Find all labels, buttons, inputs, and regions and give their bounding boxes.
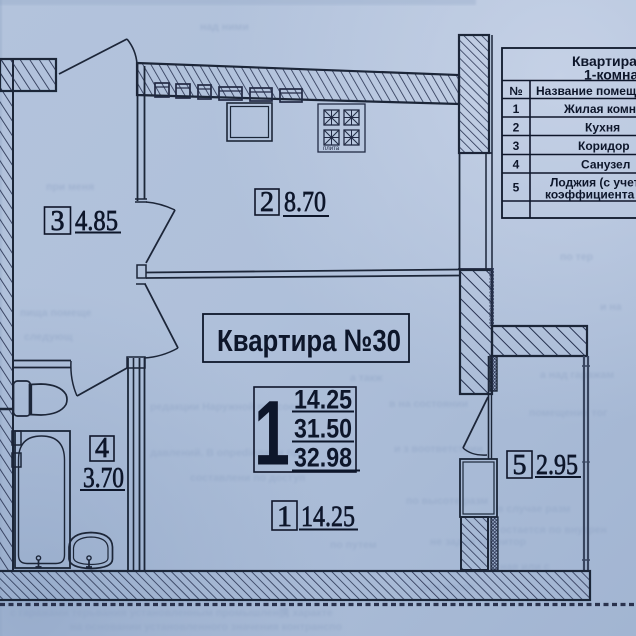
svg-text:3: 3 bbox=[513, 139, 520, 153]
svg-text:Санузел: Санузел bbox=[581, 158, 630, 172]
svg-text:а такж: а такж bbox=[350, 372, 383, 384]
svg-text:при меня: при меня bbox=[46, 181, 94, 193]
svg-text:остается по внутрен: остается по внутрен bbox=[500, 524, 607, 536]
svg-text:на основании установленного зн: на основании установленного значения кон… bbox=[70, 621, 342, 633]
svg-text:2: 2 bbox=[260, 187, 274, 218]
svg-text:4: 4 bbox=[95, 433, 109, 464]
svg-text:по высоте разм: по высоте разм bbox=[406, 495, 488, 507]
svg-text:по тер: по тер bbox=[560, 251, 593, 263]
svg-text:Название помещений: Название помещений bbox=[536, 84, 636, 98]
svg-text:а над гаражам: а над гаражам bbox=[540, 369, 614, 381]
svg-text:1: 1 bbox=[277, 500, 292, 533]
svg-text:32.98: 32.98 bbox=[294, 443, 352, 473]
svg-text:следующ: следующ bbox=[24, 331, 73, 343]
svg-text:31.50: 31.50 bbox=[294, 414, 352, 444]
svg-text:14.25: 14.25 bbox=[301, 500, 355, 533]
svg-text:5: 5 bbox=[513, 181, 520, 195]
svg-text:1: 1 bbox=[254, 381, 290, 484]
svg-text:Жилая комната: Жилая комната bbox=[563, 102, 636, 116]
svg-text:Коридор: Коридор bbox=[578, 139, 630, 153]
svg-text:помещение тог: помещение тог bbox=[529, 407, 608, 419]
svg-text:2: 2 bbox=[513, 121, 520, 135]
svg-text:1-комнатная: 1-комнатная bbox=[584, 67, 636, 83]
svg-text:плита: плита bbox=[323, 146, 340, 152]
svg-text:14.25: 14.25 bbox=[294, 385, 352, 415]
svg-text:пища помеще: пища помеще bbox=[20, 307, 92, 319]
svg-text:5: 5 bbox=[513, 450, 527, 481]
svg-text:и з воответствии: и з воответствии bbox=[394, 443, 483, 455]
svg-text:8.70: 8.70 bbox=[284, 187, 326, 218]
svg-text:Кухня: Кухня bbox=[585, 121, 620, 135]
svg-text:в на состоянии: в на состоянии bbox=[389, 398, 468, 410]
svg-text:1: 1 bbox=[513, 102, 520, 116]
svg-text:по путем: по путем bbox=[330, 539, 377, 551]
svg-text:с гаражами терьвания установле: с гаражами терьвания установленным промы… bbox=[10, 606, 333, 619]
svg-text:и на: и на bbox=[600, 301, 622, 313]
svg-text:в случае разм: в случае разм bbox=[497, 503, 571, 515]
svg-text:коэффициента 0,5): коэффициента 0,5) bbox=[545, 188, 636, 202]
svg-text:над ними: над ними bbox=[200, 21, 249, 33]
svg-text:№: № bbox=[509, 84, 522, 98]
svg-text:4: 4 bbox=[513, 158, 520, 172]
svg-text:3: 3 bbox=[51, 206, 65, 237]
svg-text:Квартира №30: Квартира №30 bbox=[217, 323, 401, 358]
